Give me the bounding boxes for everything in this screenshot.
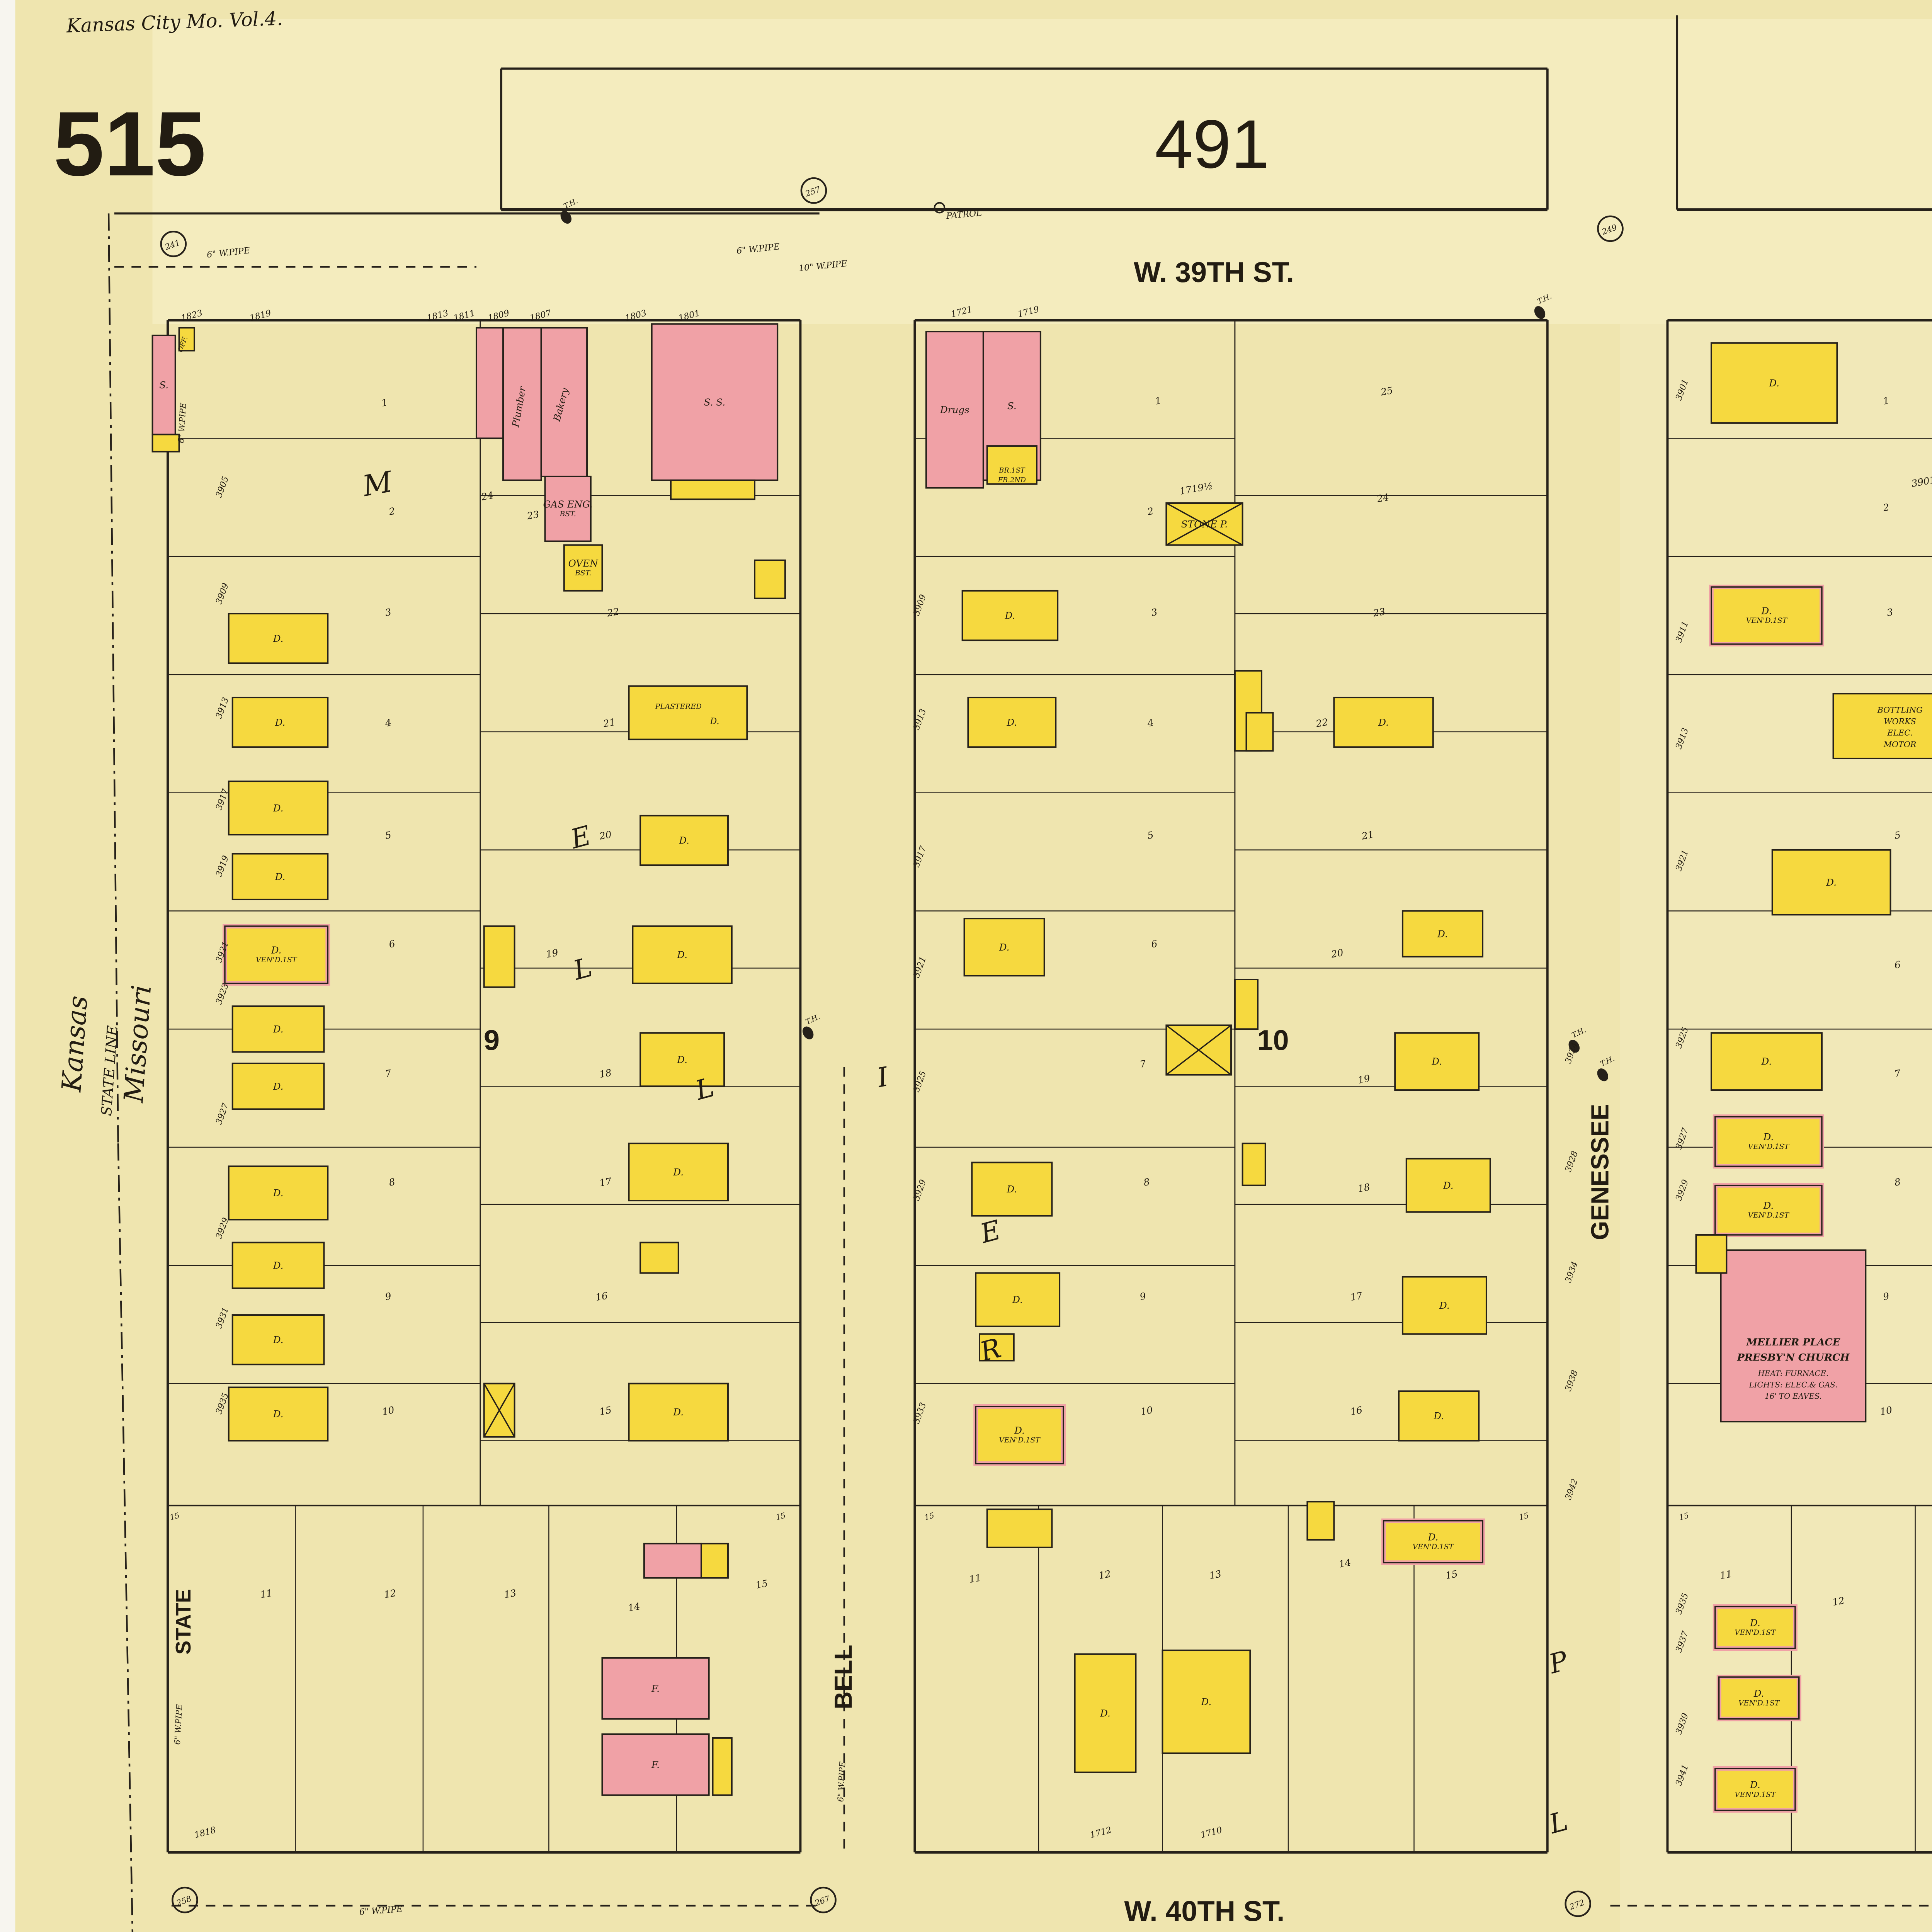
building-label: S. S.: [704, 396, 726, 408]
building-footprint: [476, 328, 505, 438]
map-label: FR.2ND: [998, 476, 1026, 484]
map-label: 18: [1357, 1181, 1371, 1194]
map-label: 16: [595, 1290, 609, 1303]
map-label: 15: [1445, 1568, 1459, 1581]
building-label: VEN'D.1ST: [1738, 1699, 1780, 1708]
building-label: VEN'D.1ST: [1735, 1791, 1776, 1799]
map-label: WORKS: [1884, 717, 1916, 726]
church-label: HEAT: FURNACE.: [1758, 1369, 1829, 1378]
building-label: GAS ENG.: [543, 498, 593, 510]
building-label: D.: [1201, 1696, 1212, 1708]
map-label: 10: [1140, 1404, 1154, 1417]
church-label: PRESBY'N CHURCH: [1736, 1352, 1850, 1363]
map-label: 20: [598, 829, 612, 842]
street-name: W. 40TH ST.: [1124, 1895, 1284, 1927]
building-footprint: [1243, 1143, 1265, 1185]
map-label: BOTTLING: [1877, 706, 1923, 715]
building-label: VEN'D.1ST: [999, 1436, 1041, 1444]
map-label: 16: [1349, 1404, 1363, 1417]
building-footprint: [1833, 694, 1932, 759]
church-label: MELLIER PLACE: [1746, 1337, 1840, 1348]
building-label: D.: [273, 1334, 284, 1345]
building-footprint: [1696, 1235, 1726, 1273]
map-label: 17: [1349, 1290, 1363, 1303]
map-label: 23: [1372, 606, 1386, 619]
building-footprint: [1235, 980, 1258, 1029]
building-label: VEN'D.1ST: [1748, 1143, 1790, 1151]
building-label: D.: [1005, 610, 1015, 621]
building-label: D.: [673, 1406, 684, 1418]
map-label: 22: [1315, 716, 1329, 730]
building-footprint: [713, 1738, 732, 1795]
map-canvas: S.PlumberBakeryGAS ENG.BST.OVENBST.S. S.…: [0, 0, 1932, 1932]
map-label: 23: [526, 509, 540, 522]
map-label: 20: [1330, 947, 1344, 960]
block-number: 10: [1257, 1024, 1289, 1056]
building-label: D.: [1750, 1779, 1760, 1791]
building-label: BST.: [575, 569, 591, 577]
building-label: D.: [999, 942, 1010, 953]
building-label: D.: [1006, 1184, 1017, 1195]
map-label: BR.1ST: [998, 467, 1026, 474]
building-label: D.: [273, 1081, 284, 1092]
building-label: D.: [1437, 928, 1448, 939]
street-name: GENESSEE: [1586, 1104, 1614, 1240]
building-label: D.: [273, 1408, 284, 1420]
map-label: 13: [1208, 1568, 1222, 1581]
building-footprint: [629, 686, 747, 740]
paper-area: [153, 19, 1932, 324]
building-label: D.: [1761, 1056, 1772, 1067]
building-label: STONE P.: [1181, 519, 1228, 530]
church-label: LIGHTS: ELEC.& GAS.: [1749, 1380, 1838, 1389]
scan-edge: [0, 0, 15, 1932]
building-label: D.: [1378, 717, 1389, 728]
building-label: D.: [1763, 1200, 1774, 1211]
building-label: D.: [273, 803, 284, 814]
building-label: D.: [1769, 378, 1779, 389]
map-label: 25: [1379, 385, 1394, 398]
map-label: 18: [599, 1067, 612, 1080]
building-footprint: [671, 480, 755, 499]
map-label: 11: [259, 1587, 273, 1600]
building-label: D.: [1100, 1708, 1111, 1719]
map-label: 17: [599, 1175, 612, 1189]
building-footprint: [640, 1243, 679, 1273]
building-label: D.: [1750, 1617, 1760, 1628]
building-label: D.: [273, 1260, 284, 1271]
map-label: 15: [755, 1578, 769, 1591]
building-label: D.: [1763, 1131, 1774, 1143]
map-label: 11: [968, 1572, 982, 1585]
map-label: 19: [545, 947, 559, 960]
building-label: S.: [1007, 400, 1017, 412]
map-label: 13: [503, 1587, 517, 1600]
building-footprint: [987, 1509, 1052, 1548]
map-label: 15: [599, 1404, 612, 1417]
building-label: D.: [1753, 1688, 1764, 1699]
building-label: D.: [1006, 717, 1017, 728]
map-label: 22: [606, 606, 620, 619]
map-label: 24: [1376, 492, 1390, 505]
building-label: D.: [1427, 1531, 1438, 1543]
building-label: VEN'D.1ST: [1748, 1211, 1790, 1219]
building-label: BST.: [560, 510, 576, 518]
building-footprint: [755, 560, 785, 599]
building-footprint: [153, 434, 179, 451]
map-label: 24: [480, 490, 494, 503]
building-label: D.: [1443, 1180, 1454, 1191]
map-label: 10: [381, 1404, 395, 1417]
map-label: 11: [1719, 1568, 1733, 1581]
map-label: 14: [1338, 1557, 1352, 1570]
church-label: 16' TO EAVES.: [1765, 1392, 1822, 1401]
building-label: D.: [273, 633, 284, 644]
map-label: ELEC.: [1887, 728, 1913, 738]
building-label: D.: [1439, 1300, 1450, 1311]
building-footprint: [701, 1544, 728, 1578]
building-footprint: [1246, 713, 1273, 751]
building-label: D.: [673, 1167, 684, 1178]
building-label: D.: [677, 1054, 687, 1065]
building-label: VEN'D.1ST: [1735, 1629, 1776, 1637]
building-label: D.: [679, 835, 689, 846]
building-label: D.: [1014, 1425, 1025, 1436]
building-label: D.: [275, 871, 286, 882]
building-label: D.: [273, 1024, 284, 1035]
building-label: D.: [1431, 1056, 1442, 1067]
building-label: D.: [1433, 1410, 1444, 1422]
building-label: D.: [271, 944, 282, 956]
building-label: D.: [1761, 605, 1772, 617]
building-label: VEN'D.1ST: [256, 956, 298, 964]
map-label: PLASTERED: [655, 703, 702, 711]
block-number: 9: [484, 1024, 500, 1056]
map-label: 21: [1361, 829, 1375, 842]
building-label: D.: [1012, 1294, 1023, 1305]
building-footprint: [484, 926, 515, 987]
building-footprint: [1307, 1502, 1334, 1540]
map-label: 10: [1879, 1404, 1893, 1417]
map-label: MOTOR: [1883, 740, 1917, 749]
street-name: STATE: [172, 1589, 195, 1655]
map-label: 14: [627, 1600, 641, 1614]
building-label: D.: [273, 1187, 284, 1199]
building-label: VEN'D.1ST: [1746, 617, 1788, 625]
map-label: 12: [1098, 1568, 1112, 1581]
map-label: 12: [383, 1587, 397, 1600]
sanborn-map-sheet: S.PlumberBakeryGAS ENG.BST.OVENBST.S. S.…: [0, 0, 1932, 1932]
building-label: F.: [651, 1683, 660, 1694]
building-label: OVEN: [568, 558, 599, 569]
building-label: D.: [677, 949, 687, 961]
map-label: 19: [1357, 1073, 1371, 1086]
building-footprint: [644, 1544, 701, 1578]
map-label: D.: [709, 716, 719, 726]
map-label: 21: [602, 716, 616, 730]
building-label: D.: [1826, 877, 1837, 888]
building-label: VEN'D.1ST: [1413, 1543, 1454, 1551]
street-name: BELL: [830, 1645, 857, 1709]
map-label: 12: [1832, 1595, 1845, 1608]
sheet-number: 515: [53, 93, 206, 195]
building-label: F.: [651, 1759, 660, 1770]
building-label: S.: [159, 379, 168, 391]
adjacent-sheet-number: 491: [1155, 105, 1269, 182]
building-label: D.: [275, 717, 286, 728]
building-label: Drugs: [940, 404, 969, 415]
street-name: W. 39TH ST.: [1134, 256, 1294, 288]
